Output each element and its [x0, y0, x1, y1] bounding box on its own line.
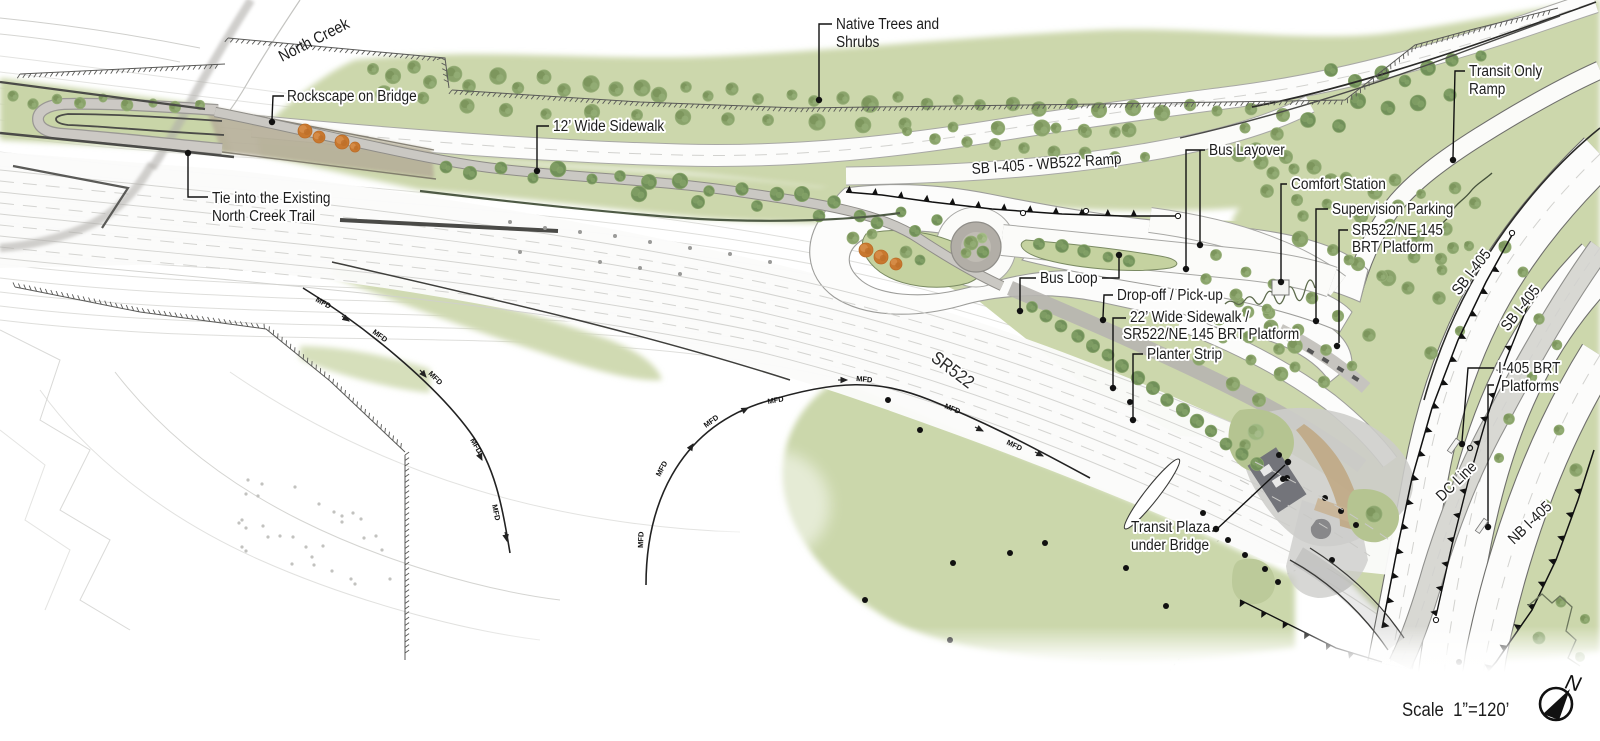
svg-text:Bus Layover: Bus Layover [1209, 142, 1285, 159]
svg-text:Scale 1”=120’: Scale 1”=120’ [1402, 700, 1509, 721]
svg-text:12’ Wide Sidewalk: 12’ Wide Sidewalk [553, 118, 664, 135]
svg-text:BRT Platform: BRT Platform [1352, 239, 1433, 256]
svg-text:Planter Strip: Planter Strip [1147, 346, 1222, 363]
svg-text:Supervision Parking: Supervision Parking [1332, 201, 1453, 218]
svg-text:I-405 BRT: I-405 BRT [1498, 360, 1561, 377]
svg-text:under Bridge: under Bridge [1131, 537, 1209, 554]
svg-text:Transit Plaza: Transit Plaza [1131, 519, 1211, 536]
svg-text:MFD: MFD [636, 531, 646, 548]
svg-text:22’ Wide Sidewalk /: 22’ Wide Sidewalk / [1130, 309, 1250, 326]
svg-text:Platforms: Platforms [1501, 378, 1559, 395]
svg-text:North Creek Trail: North Creek Trail [212, 208, 315, 225]
svg-text:Drop-off / Pick-up: Drop-off / Pick-up [1117, 287, 1223, 304]
svg-text:MFD: MFD [856, 374, 874, 384]
svg-text:Comfort Station: Comfort Station [1291, 176, 1386, 193]
svg-text:Native Trees and: Native Trees and [836, 16, 939, 33]
svg-text:Shrubs: Shrubs [836, 34, 880, 51]
svg-text:Tie into the Existing: Tie into the Existing [212, 190, 331, 207]
svg-text:Bus Loop: Bus Loop [1040, 270, 1098, 287]
svg-text:Ramp: Ramp [1469, 81, 1505, 98]
svg-text:SR522/NE 145: SR522/NE 145 [1352, 222, 1443, 239]
svg-text:Rockscape on Bridge: Rockscape on Bridge [287, 88, 417, 105]
svg-text:SR522/NE 145 BRT Platform: SR522/NE 145 BRT Platform [1123, 326, 1299, 343]
svg-text:Transit Only: Transit Only [1469, 63, 1542, 80]
